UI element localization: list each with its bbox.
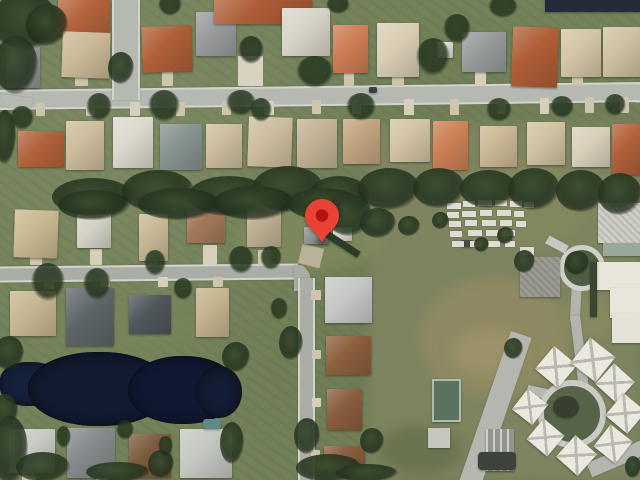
driveway (572, 77, 583, 86)
tree (108, 52, 134, 84)
house (141, 25, 193, 73)
tree (228, 246, 254, 274)
tree-cluster (16, 452, 70, 480)
house (297, 119, 337, 168)
driveway (203, 245, 217, 265)
map-marker[interactable] (302, 197, 342, 244)
culdesac-island-vehicles (553, 396, 579, 418)
house (603, 27, 640, 77)
storage-unit (516, 221, 526, 227)
driveway (312, 398, 321, 407)
driveway (158, 277, 168, 287)
driveway (130, 102, 140, 116)
driveway (162, 70, 173, 86)
tree (83, 268, 111, 300)
tree (158, 436, 173, 456)
driveway (404, 99, 414, 115)
tree (238, 36, 264, 64)
tree (158, 0, 182, 16)
driveway (540, 98, 549, 114)
road-vertical-topleft (112, 0, 140, 100)
field-brown-patch (556, 298, 618, 340)
tree (270, 298, 288, 320)
storage-unit (465, 220, 477, 226)
tree (360, 428, 384, 454)
driveway (450, 99, 459, 115)
house (325, 277, 372, 323)
building (612, 313, 640, 343)
house (572, 127, 610, 167)
driveway (213, 277, 223, 287)
tree-cluster (26, 4, 68, 46)
house (326, 336, 371, 375)
tree (144, 250, 166, 276)
driveway (90, 249, 102, 265)
tree-cluster (86, 462, 150, 480)
house (462, 32, 506, 72)
culdesac-island-trees (565, 251, 589, 275)
storage-unit (480, 210, 492, 216)
house (61, 31, 111, 79)
location-pin-icon (302, 197, 342, 244)
building (593, 262, 640, 290)
storage-unit (497, 210, 511, 216)
tree (625, 456, 640, 478)
tree-cluster (336, 464, 398, 480)
tree (474, 237, 489, 252)
house (527, 122, 565, 165)
house (13, 209, 59, 259)
storage-unit (450, 231, 462, 237)
tree (296, 56, 334, 88)
driveway (312, 100, 321, 114)
house (480, 126, 517, 167)
lake (196, 366, 242, 418)
tree (443, 14, 471, 44)
house (160, 124, 202, 170)
driveway (312, 350, 321, 359)
storage-unit (488, 241, 500, 247)
tree (31, 263, 65, 301)
house (66, 121, 104, 170)
tree (488, 0, 518, 18)
house (511, 26, 559, 88)
tree (294, 418, 320, 454)
storage-unit (449, 221, 461, 227)
house (18, 131, 64, 167)
tree-line (58, 190, 130, 220)
tree (504, 338, 523, 359)
pin-inner-circle (316, 209, 329, 222)
tree (222, 342, 250, 372)
tree (220, 422, 244, 464)
tree (497, 227, 514, 244)
storage-unit (482, 220, 496, 226)
tree (346, 93, 376, 121)
tree-line (598, 173, 640, 215)
house (282, 8, 330, 56)
house (390, 119, 430, 162)
tree (604, 94, 626, 116)
house (377, 23, 419, 77)
tree (173, 278, 193, 300)
tree (398, 216, 420, 236)
tree (550, 96, 574, 118)
tree-line (213, 186, 295, 220)
house (433, 121, 468, 170)
house (113, 117, 153, 168)
building-flat-roof (603, 243, 640, 256)
house (612, 124, 640, 175)
tree (116, 420, 134, 440)
driveway (392, 77, 404, 86)
tree (360, 208, 396, 238)
tree-line (138, 188, 220, 220)
house (561, 29, 601, 77)
storage-unit (468, 230, 482, 236)
parked-cars (478, 452, 516, 470)
house (343, 119, 380, 164)
storage-unit (447, 212, 459, 218)
tree (260, 246, 282, 270)
tennis-court (432, 379, 461, 422)
tree (250, 98, 272, 122)
storage-unit (514, 211, 524, 217)
tree (56, 426, 71, 448)
house (327, 389, 362, 430)
car (369, 87, 377, 93)
tree-line (508, 168, 560, 210)
house (333, 25, 368, 73)
storage-unit (452, 241, 464, 247)
tree-line (413, 168, 465, 208)
building (428, 428, 450, 448)
pool (203, 419, 221, 429)
tree (86, 93, 112, 121)
house (196, 288, 229, 337)
house (247, 116, 293, 168)
tree (148, 90, 180, 122)
storage-unit (462, 211, 476, 217)
driveway (475, 72, 486, 86)
house (129, 295, 171, 334)
tree (279, 326, 303, 360)
tree (416, 38, 450, 76)
tree (432, 212, 449, 229)
driveway (36, 103, 45, 116)
driveway (311, 290, 321, 300)
roof-dark-band (545, 0, 640, 12)
map-viewport (0, 0, 640, 480)
tree (514, 250, 535, 273)
driveway (344, 73, 354, 86)
house (206, 124, 242, 168)
tree (326, 0, 350, 14)
driveway (585, 97, 594, 113)
tree (486, 98, 512, 122)
hedge (590, 262, 597, 317)
storage-unit (500, 220, 512, 226)
